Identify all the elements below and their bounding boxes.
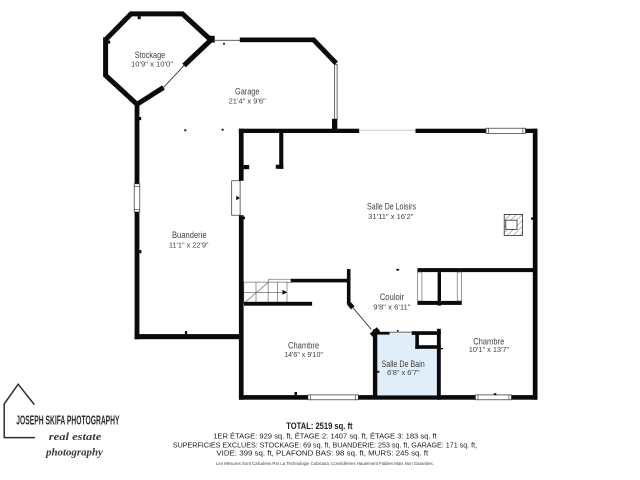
- svg-text:Chambre: Chambre: [288, 341, 319, 351]
- svg-text:Stockage: Stockage: [135, 50, 165, 60]
- svg-text:1ER ÉTAGE: 929 sq. ft, ÉTAGE 2: 1ER ÉTAGE: 929 sq. ft, ÉTAGE 2: 1407 sq.…: [213, 431, 437, 440]
- svg-text:9'8" x 6'11": 9'8" x 6'11": [373, 302, 411, 311]
- svg-text:Les Mesures Sont Calculées Par: Les Mesures Sont Calculées Par La Techno…: [216, 461, 434, 466]
- svg-text:31'11" x 16'2": 31'11" x 16'2": [368, 212, 414, 221]
- svg-text:VIDE: 399 sq. ft, PLAFOND BAS:: VIDE: 399 sq. ft, PLAFOND BAS: 98 sq. ft…: [216, 449, 429, 458]
- svg-text:10'1" x 13'7": 10'1" x 13'7": [469, 345, 510, 354]
- svg-text:real estate: real estate: [49, 432, 102, 443]
- svg-text:14'6" x 9'10": 14'6" x 9'10": [284, 350, 323, 359]
- svg-text:Salle De Loisirs: Salle De Loisirs: [367, 202, 416, 212]
- svg-text:21'4" x 9'6": 21'4" x 9'6": [229, 97, 267, 106]
- svg-text:Buanderie: Buanderie: [172, 230, 207, 240]
- svg-text:6'8" x 6'7": 6'8" x 6'7": [387, 368, 420, 377]
- svg-text:TOTAL: 2519 sq. ft: TOTAL: 2519 sq. ft: [286, 421, 352, 431]
- svg-text:JOSEPH SKIFA PHOTOGRAPHY: JOSEPH SKIFA PHOTOGRAPHY: [16, 414, 120, 428]
- svg-text:11'1" x 22'9": 11'1" x 22'9": [169, 241, 209, 250]
- svg-text:Garage: Garage: [235, 86, 259, 96]
- svg-text:photography: photography: [45, 448, 104, 459]
- svg-text:Couloir: Couloir: [380, 292, 404, 302]
- svg-text:10'9" x 10'0": 10'9" x 10'0": [131, 60, 173, 69]
